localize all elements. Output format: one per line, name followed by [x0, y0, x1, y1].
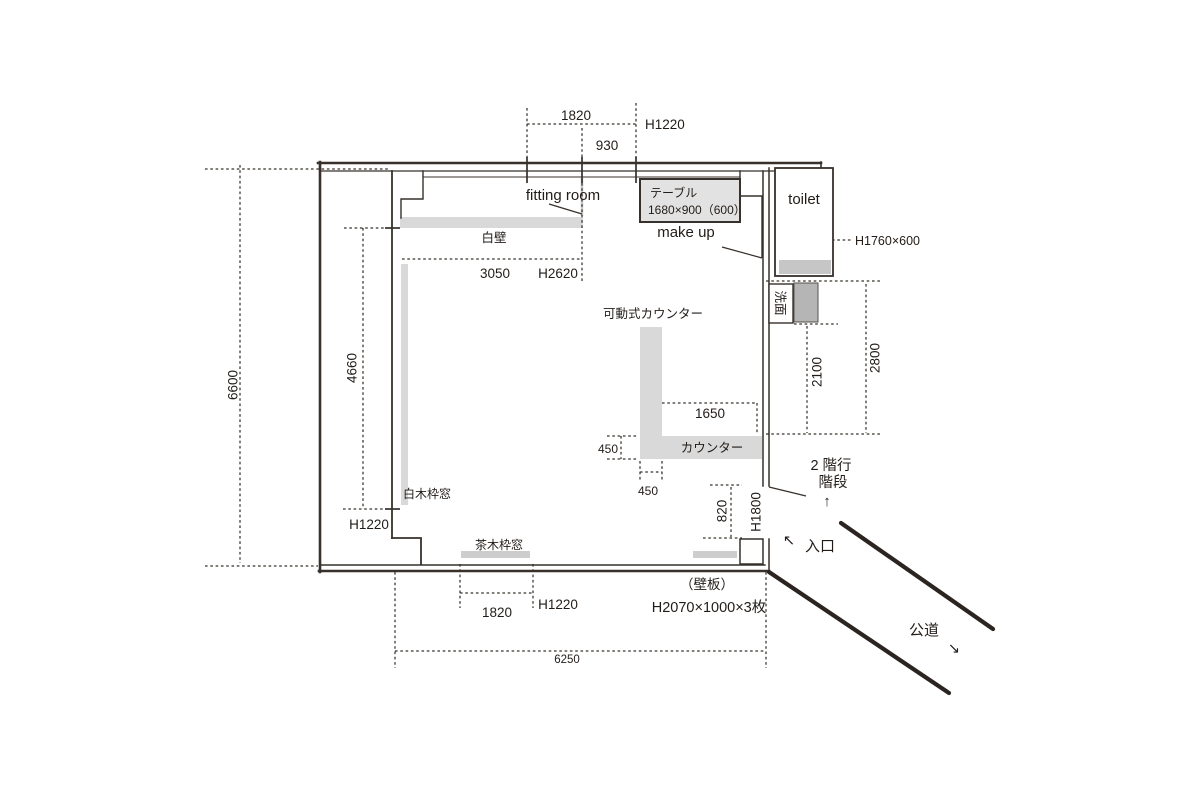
- movable-counter-bar: [640, 327, 662, 459]
- stairs-label-line1: 2 階行: [810, 457, 851, 474]
- makeup-leader: [722, 247, 762, 258]
- toilet-label: toilet: [788, 191, 821, 208]
- left-window-bar: [401, 264, 408, 505]
- public-road-label: 公道: [909, 622, 939, 639]
- dim-3050: 3050: [480, 266, 510, 281]
- dim-h1800: H1800: [749, 492, 764, 532]
- makeup-label: make up: [657, 224, 715, 241]
- movable-counter-label: 可動式カウンター: [603, 307, 703, 321]
- dim-h1220-left: H1220: [349, 517, 389, 532]
- dim-450-leg: 450: [638, 484, 658, 498]
- entrance-label: 入口: [805, 538, 835, 555]
- stairs-label-line2: 階段: [819, 474, 848, 491]
- dim-1650: 1650: [695, 406, 725, 421]
- white-wall-label: 白壁: [481, 230, 506, 245]
- floor-plan-page: 1820 930 H1220 fitting room テーブル 1680×90…: [0, 0, 1200, 800]
- dim-6600: 6600: [226, 370, 241, 400]
- white-frame-window-label: 白木枠窓: [403, 486, 451, 501]
- floor-plan-svg: 1820 930 H1220 fitting room テーブル 1680×90…: [0, 0, 1200, 800]
- fitting-room-leader: [549, 204, 582, 214]
- washbasin-label: 洗面: [773, 290, 787, 315]
- table-size-label: 1680×900（600）: [648, 203, 746, 217]
- dim-h1760: H1760×600: [855, 234, 920, 248]
- dim-1820-top: 1820: [561, 108, 591, 123]
- washbasin-counter: [794, 283, 818, 322]
- bottom-left-step: [392, 538, 421, 564]
- stairs-door-leader: [769, 487, 806, 496]
- dim-820: 820: [715, 500, 730, 523]
- dim-6250: 6250: [554, 654, 580, 666]
- road-arrow-icon: ↘: [948, 641, 960, 657]
- dim-930: 930: [596, 138, 619, 153]
- dim-h1220-top: H1220: [645, 117, 685, 132]
- white-wall-bar: [400, 217, 583, 228]
- wall-board-spec-label: H2070×1000×3枚: [652, 599, 767, 616]
- toilet-shelf-bar: [779, 260, 831, 274]
- top-left-notch: [401, 171, 423, 218]
- bottom-right-step: [740, 539, 763, 564]
- dim-h1220-bottom: H1220: [538, 597, 578, 612]
- dim-450-depth: 450: [598, 442, 618, 456]
- dim-4660: 4660: [345, 353, 360, 383]
- table-label: テーブル: [650, 185, 697, 200]
- stairs-up-arrow-icon: ↑: [823, 493, 831, 510]
- road-line-upper: [841, 523, 993, 629]
- counter-label: カウンター: [681, 441, 744, 455]
- wall-board-label: （壁板）: [680, 577, 734, 592]
- dim-2100: 2100: [810, 357, 825, 387]
- dim-1820-bottom: 1820: [482, 605, 512, 620]
- brown-frame-window-label: 茶木枠窓: [475, 537, 523, 552]
- entrance-arrow-icon: ↖: [783, 533, 795, 549]
- bottom-right-wall-board-bar: [693, 551, 737, 558]
- dim-h2620: H2620: [538, 266, 578, 281]
- bottom-window-bar: [461, 551, 530, 558]
- fitting-room-label: fitting room: [526, 187, 600, 204]
- toilet-room-box: [775, 168, 833, 276]
- dim-2800: 2800: [868, 343, 883, 373]
